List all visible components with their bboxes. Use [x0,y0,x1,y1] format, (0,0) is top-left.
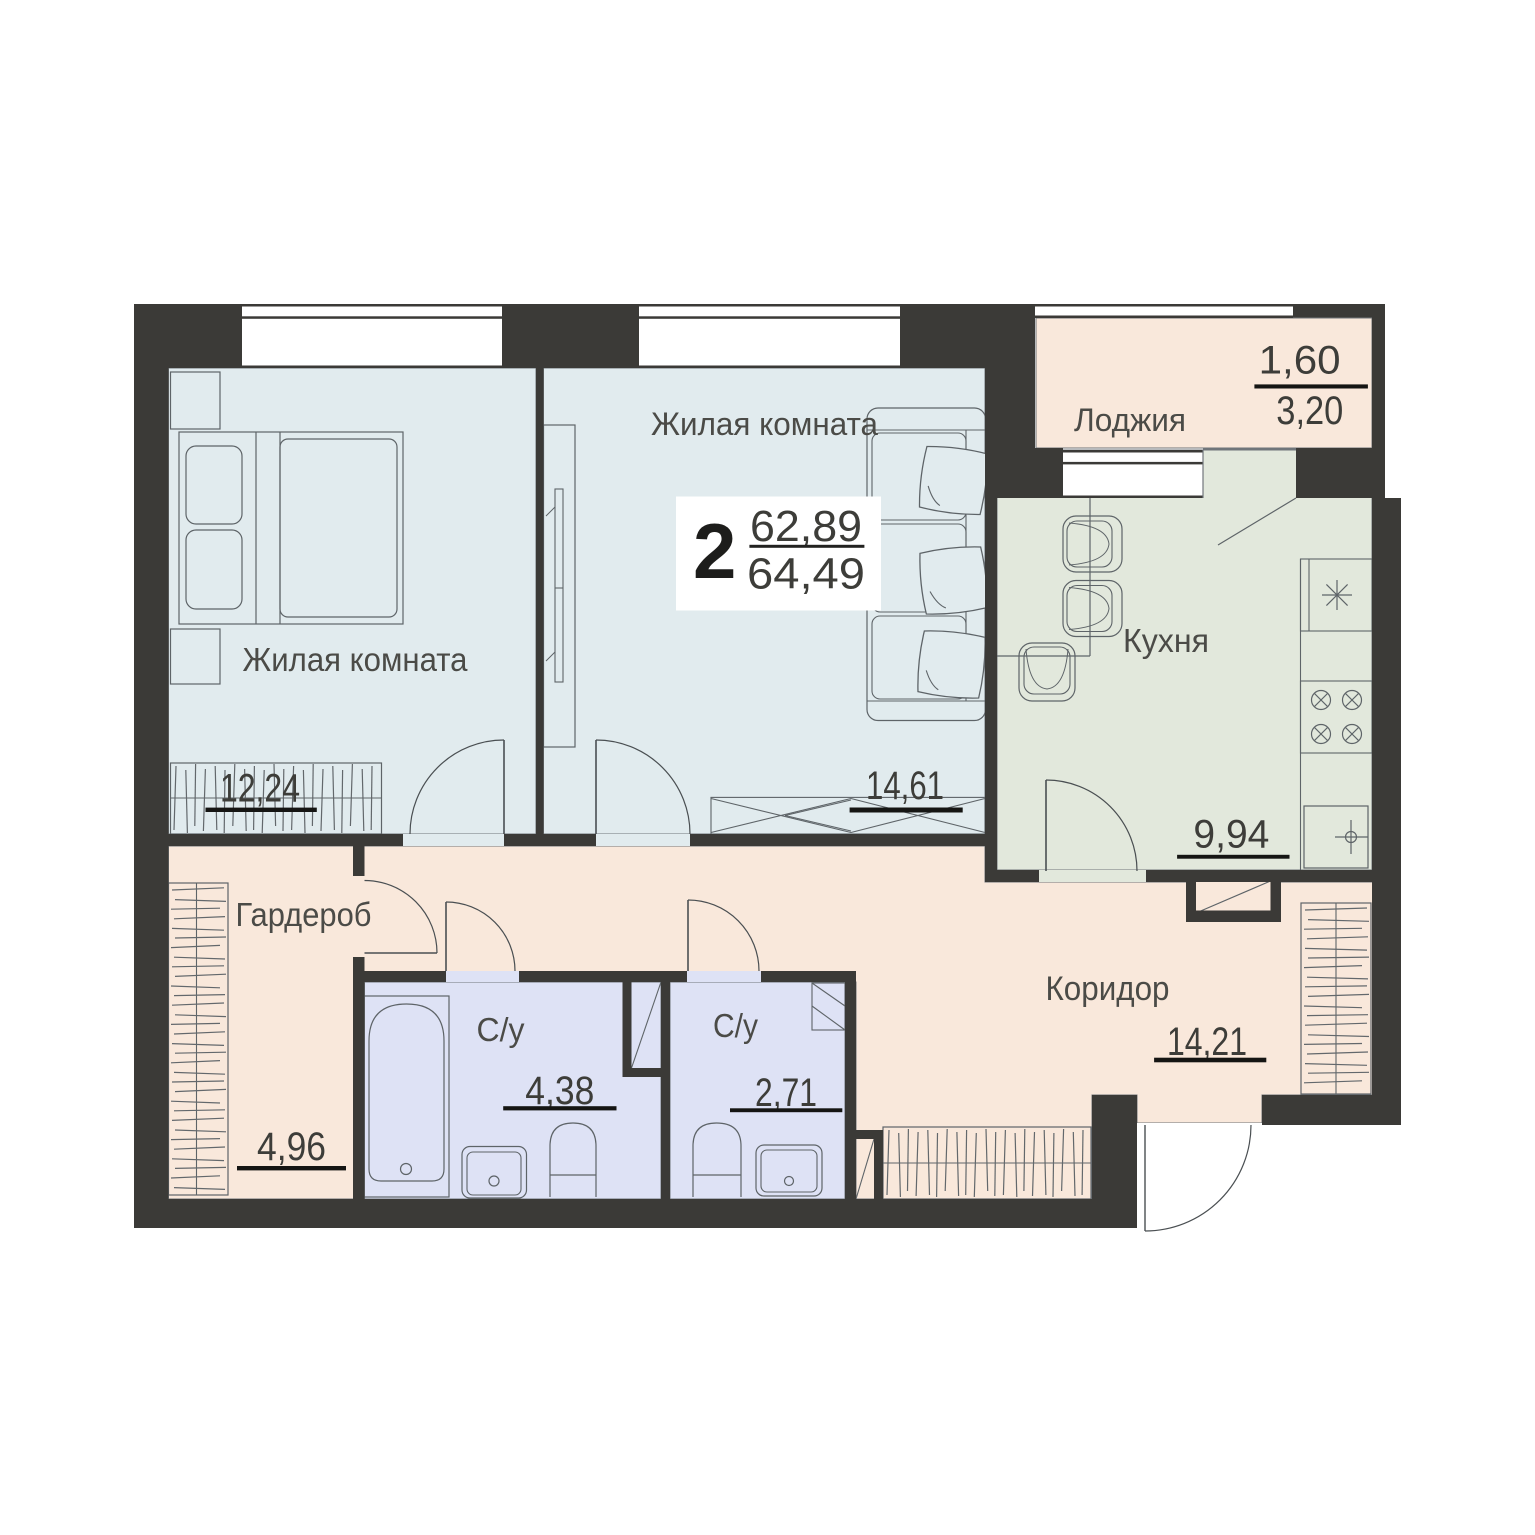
svg-text:С/у: С/у [477,1011,525,1048]
svg-text:Кухня: Кухня [1123,622,1209,659]
svg-text:62,89: 62,89 [750,502,862,551]
svg-text:С/у: С/у [713,1007,758,1044]
svg-text:64,49: 64,49 [747,550,865,599]
svg-text:Коридор: Коридор [1046,970,1170,1008]
svg-text:3,20: 3,20 [1276,389,1343,433]
svg-text:Лоджия: Лоджия [1074,402,1186,438]
svg-text:14,61: 14,61 [866,764,944,808]
svg-text:Жилая комната: Жилая комната [243,641,469,678]
svg-text:Жилая комната: Жилая комната [651,406,878,442]
svg-text:9,94: 9,94 [1193,813,1269,857]
svg-text:14,21: 14,21 [1167,1020,1247,1064]
svg-text:1,60: 1,60 [1259,338,1341,382]
svg-text:Гардероб: Гардероб [236,896,372,933]
svg-text:2: 2 [693,507,736,595]
svg-text:12,24: 12,24 [220,767,300,811]
svg-text:4,96: 4,96 [257,1125,326,1169]
